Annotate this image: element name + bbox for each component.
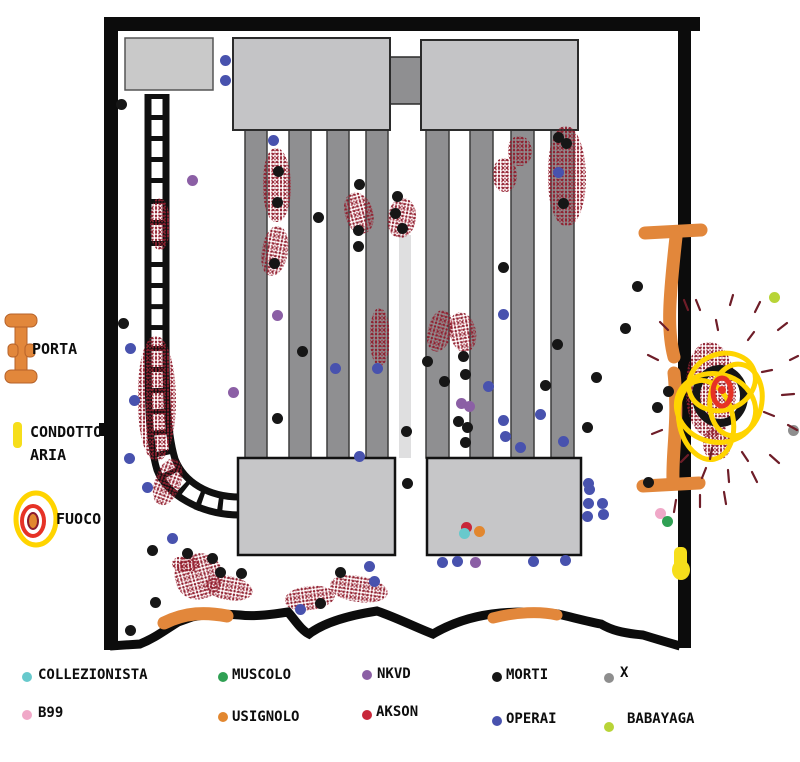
legend-dot-collezionista (22, 672, 32, 682)
legend-label-akson: AKSON (376, 704, 418, 720)
legend-label-morti: MORTI (506, 667, 548, 683)
legend-label-collezionista: COLLEZIONISTA (38, 667, 148, 683)
legend-dot-nkvd (362, 670, 372, 680)
legend-label-usignolo: USIGNOLO (232, 709, 299, 725)
legend-dot-muscolo (218, 672, 228, 682)
legend: COLLEZIONISTAMUSCOLONKVDMORTIXB99USIGNOL… (0, 0, 800, 762)
legend-label-nkvd: NKVD (377, 666, 411, 682)
legend-label-b99: B99 (38, 705, 63, 721)
legend-dot-usignolo (218, 712, 228, 722)
legend-dot-operai (492, 716, 502, 726)
legend-dot-x (604, 673, 614, 683)
legend-dot-morti (492, 672, 502, 682)
legend-label-x: X (620, 665, 628, 681)
legend-dot-babayaga (604, 722, 614, 732)
map-canvas: PORTA CONDOTTO ARIA FUOCO COLLEZIONISTAM… (0, 0, 800, 762)
legend-label-muscolo: MUSCOLO (232, 667, 291, 683)
legend-label-babayaga: BABAYAGA (627, 711, 694, 727)
legend-dot-b99 (22, 710, 32, 720)
legend-dot-akson (362, 710, 372, 720)
legend-label-operai: OPERAI (506, 711, 557, 727)
